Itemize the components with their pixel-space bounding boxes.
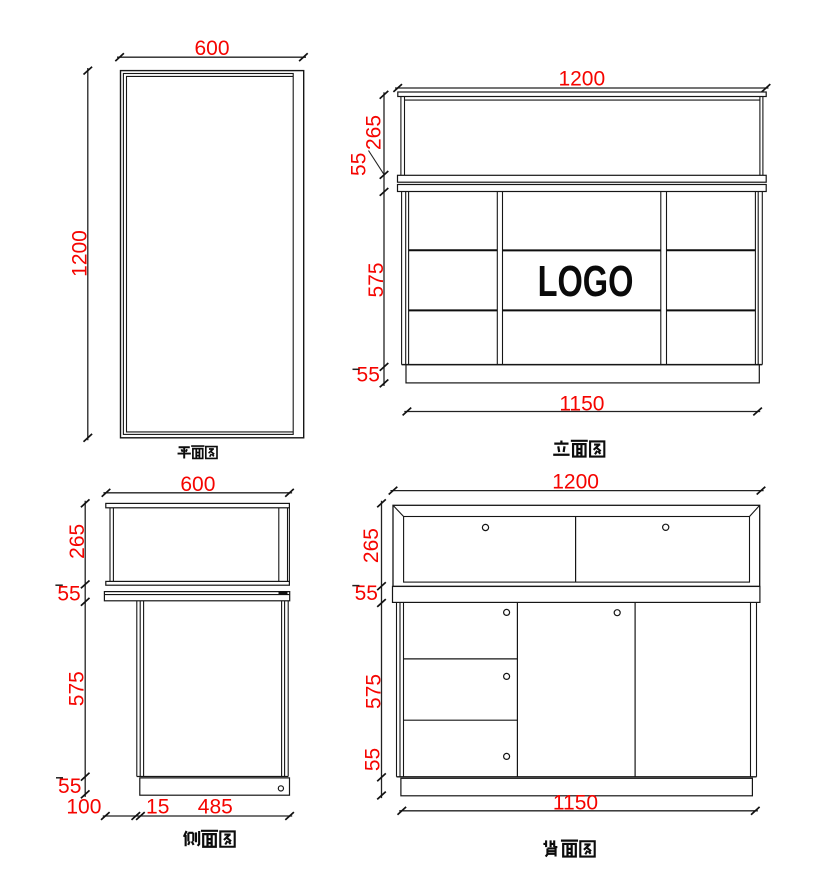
- svg-text:575: 575: [66, 671, 89, 706]
- svg-text:100: 100: [66, 796, 101, 819]
- svg-text:15: 15: [146, 796, 169, 819]
- svg-text:485: 485: [198, 796, 233, 819]
- svg-text:265: 265: [66, 524, 89, 559]
- svg-text:575: 575: [365, 262, 388, 297]
- svg-text:1200: 1200: [558, 68, 605, 91]
- svg-text:55: 55: [357, 364, 380, 387]
- svg-text:265: 265: [363, 115, 386, 150]
- svg-text:265: 265: [360, 528, 383, 563]
- svg-text:55: 55: [362, 748, 385, 771]
- svg-text:55: 55: [348, 153, 371, 176]
- svg-text:LOGO: LOGO: [538, 257, 634, 306]
- svg-text:575: 575: [363, 674, 386, 709]
